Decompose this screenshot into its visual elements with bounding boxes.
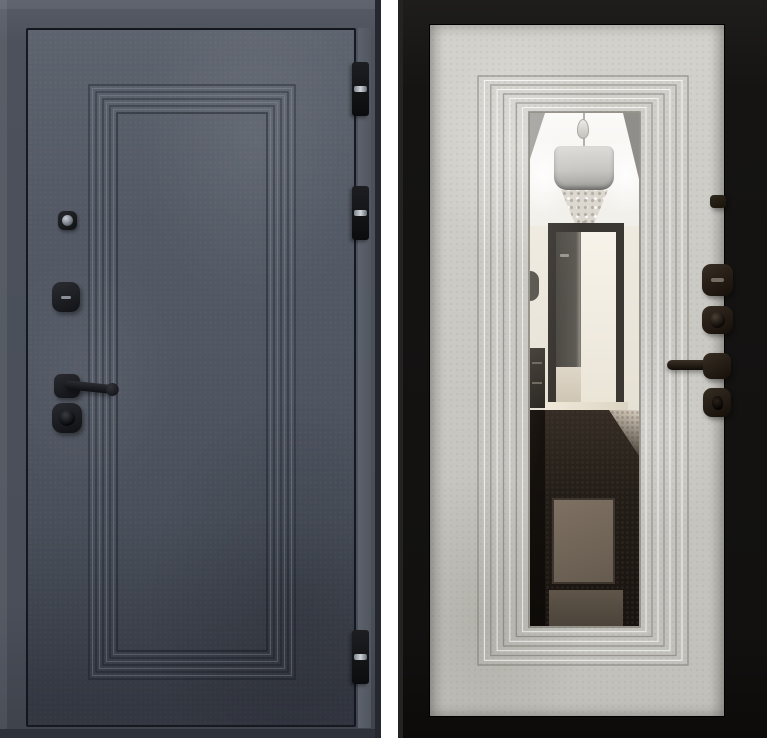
threshold-shadow [0, 729, 375, 738]
frame-top-casing [0, 0, 381, 9]
door-hinge-middle [352, 186, 369, 240]
product-photo [0, 0, 767, 738]
door-exterior-leaf [26, 28, 356, 727]
door-interior-view [398, 0, 767, 738]
mirror-glare [530, 113, 639, 626]
key-escutcheon [703, 388, 731, 417]
thumbturn-slot-icon [61, 296, 71, 299]
deadbolt-thumbturn [52, 282, 80, 312]
thumbturn-slot-icon [711, 278, 724, 282]
knob-center [710, 312, 725, 328]
door-leaf-edge [358, 28, 371, 728]
door-exterior-view [0, 0, 381, 738]
full-length-mirror [529, 112, 640, 627]
peephole-lens-icon [62, 215, 73, 226]
peephole-cover [710, 195, 726, 208]
handle-rose [703, 353, 731, 379]
photo-edge-shadow [375, 0, 381, 738]
frame-left-casing [0, 0, 7, 738]
keyhole-icon [712, 396, 723, 410]
door-hinge-bottom [352, 630, 369, 684]
door-hinge-top [352, 62, 369, 116]
hinge-pin [354, 654, 367, 660]
thumbturn [702, 264, 733, 296]
hinge-pin [354, 86, 367, 92]
peephole [58, 211, 77, 230]
hinge-pin [354, 210, 367, 216]
key-cylinder [52, 403, 82, 433]
door-interior-panel [430, 25, 724, 716]
keyhole-icon [59, 410, 75, 426]
night-latch-knob [702, 306, 733, 334]
frame-edge-highlight [398, 0, 403, 738]
